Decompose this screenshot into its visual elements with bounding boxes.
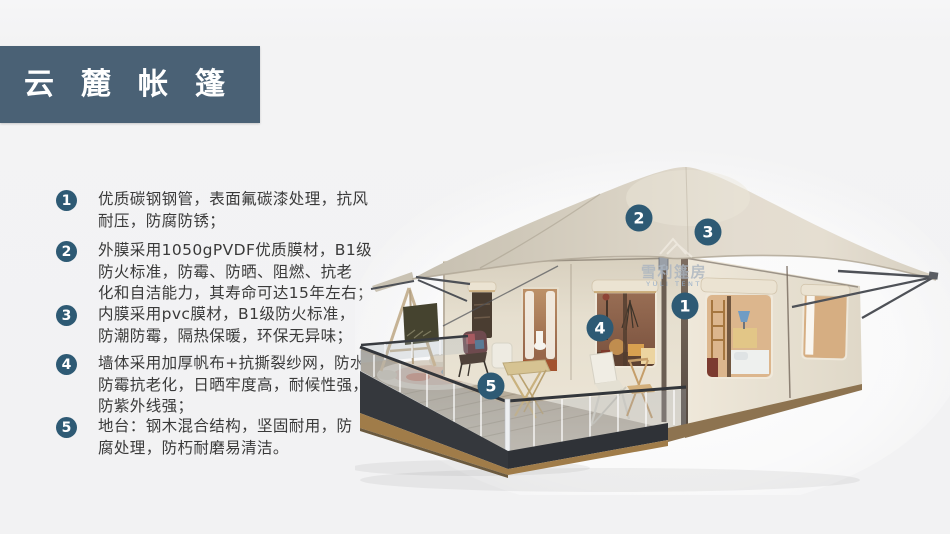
svg-text:4: 4 bbox=[594, 319, 605, 338]
svg-text:3: 3 bbox=[702, 223, 713, 242]
right-big-window bbox=[701, 278, 777, 378]
slide: 云麓帐篷 1 优质碳钢钢管，表面氟碳漆处理，抗风 耐压，防腐防锈； 2 外膜采用… bbox=[0, 0, 950, 534]
feature-badge-2: 2 bbox=[56, 241, 77, 262]
feature-text-1: 优质碳钢钢管，表面氟碳漆处理，抗风 耐压，防腐防锈； bbox=[98, 189, 374, 232]
feature-badge-5: 5 bbox=[56, 417, 77, 438]
callout-badge-1: 1 bbox=[672, 293, 699, 320]
feature-text-4: 墙体采用加厚帆布+抗撕裂纱网，防水 防霉抗老化，日晒牢度高，耐候性强， 防紫外线… bbox=[98, 353, 374, 418]
callout-badge-3: 3 bbox=[695, 219, 722, 246]
page-title: 云麓帐篷 bbox=[0, 46, 260, 123]
feature-text-3: 内膜采用pvc膜材，B1级防火标准， 防潮防霉，隔热保暖，环保无异味； bbox=[98, 304, 374, 347]
watermark-en: YULI TENT bbox=[645, 280, 702, 288]
feature-item-2: 2 外膜采用1050gPVDF优质膜材，B1级 防火标准，防霉、防晒、阻燃、抗老… bbox=[56, 240, 376, 305]
feature-item-3: 3 内膜采用pvc膜材，B1级防火标准， 防潮防霉，隔热保暖，环保无异味； bbox=[56, 304, 376, 347]
porch-door bbox=[522, 288, 558, 372]
feature-item-5: 5 地台：钢木混合结构，坚固耐用，防 腐处理，防朽耐磨易清洁。 bbox=[56, 416, 376, 459]
feature-badge-3: 3 bbox=[56, 305, 77, 326]
watermark-cn: 雪利篷房 bbox=[641, 263, 707, 281]
svg-text:2: 2 bbox=[633, 209, 644, 228]
svg-text:1: 1 bbox=[679, 297, 690, 316]
feature-text-2: 外膜采用1050gPVDF优质膜材，B1级 防火标准，防霉、防晒、阻燃、抗老 化… bbox=[98, 240, 374, 305]
callout-badge-2: 2 bbox=[626, 205, 653, 232]
feature-item-4: 4 墙体采用加厚帆布+抗撕裂纱网，防水 防霉抗老化，日晒牢度高，耐候性强， 防紫… bbox=[56, 353, 376, 418]
tent-illustration: 雪利篷房 YULI TENT bbox=[355, 150, 950, 495]
feature-badge-1: 1 bbox=[56, 190, 77, 211]
svg-text:5: 5 bbox=[485, 377, 496, 396]
feature-badge-4: 4 bbox=[56, 354, 77, 375]
feature-item-1: 1 优质碳钢钢管，表面氟碳漆处理，抗风 耐压，防腐防锈； bbox=[56, 189, 376, 232]
porch-small-window bbox=[468, 282, 496, 338]
callout-badge-5: 5 bbox=[478, 373, 505, 400]
feature-text-5: 地台：钢木混合结构，坚固耐用，防 腐处理，防朽耐磨易清洁。 bbox=[98, 416, 374, 459]
callout-badge-4: 4 bbox=[587, 315, 614, 342]
page-title-band: 云麓帐篷 bbox=[0, 46, 260, 123]
tent-render: 雪利篷房 YULI TENT bbox=[355, 150, 950, 495]
